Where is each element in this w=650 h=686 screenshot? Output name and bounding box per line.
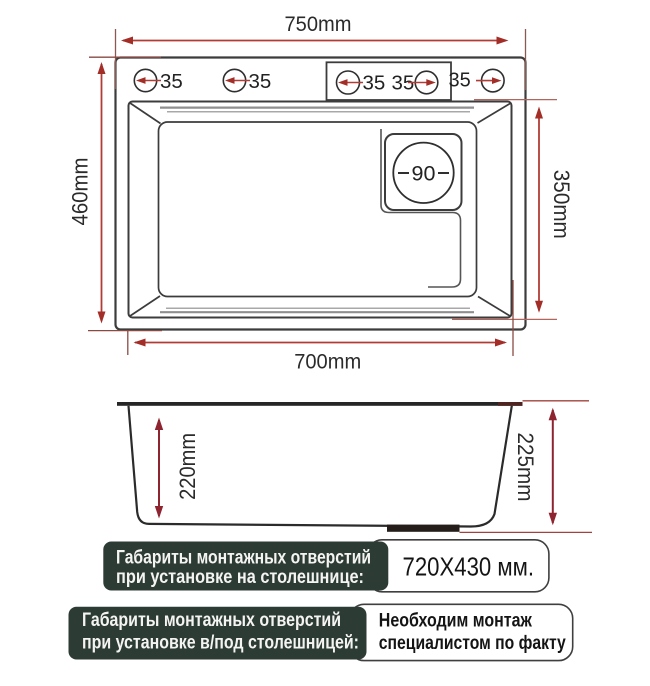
- svg-text:750mm: 750mm: [285, 12, 352, 36]
- svg-text:220mm: 220mm: [175, 433, 200, 500]
- svg-text:720X430 мм.: 720X430 мм.: [403, 552, 535, 582]
- svg-text:700mm: 700mm: [294, 349, 361, 373]
- svg-text:Габариты монтажных отверстий: Габариты монтажных отверстий: [116, 547, 371, 568]
- svg-text:90: 90: [412, 162, 436, 186]
- svg-text:225mm: 225mm: [513, 433, 538, 502]
- svg-text:35: 35: [249, 70, 272, 93]
- svg-text:35: 35: [363, 71, 386, 94]
- svg-text:35: 35: [160, 70, 183, 93]
- svg-text:при установке в/под столешнице: при установке в/под столешницей:: [82, 633, 359, 654]
- svg-text:Необходим монтаж: Необходим монтаж: [379, 611, 532, 632]
- svg-text:460mm: 460mm: [68, 158, 93, 226]
- svg-text:350mm: 350mm: [549, 170, 574, 239]
- svg-text:35: 35: [449, 70, 471, 92]
- svg-text:специалистом по факту: специалистом по факту: [379, 633, 566, 654]
- svg-text:при установке на столешнице:: при установке на столешнице:: [116, 567, 364, 588]
- svg-text:Габариты монтажных отверстий: Габариты монтажных отверстий: [82, 610, 341, 631]
